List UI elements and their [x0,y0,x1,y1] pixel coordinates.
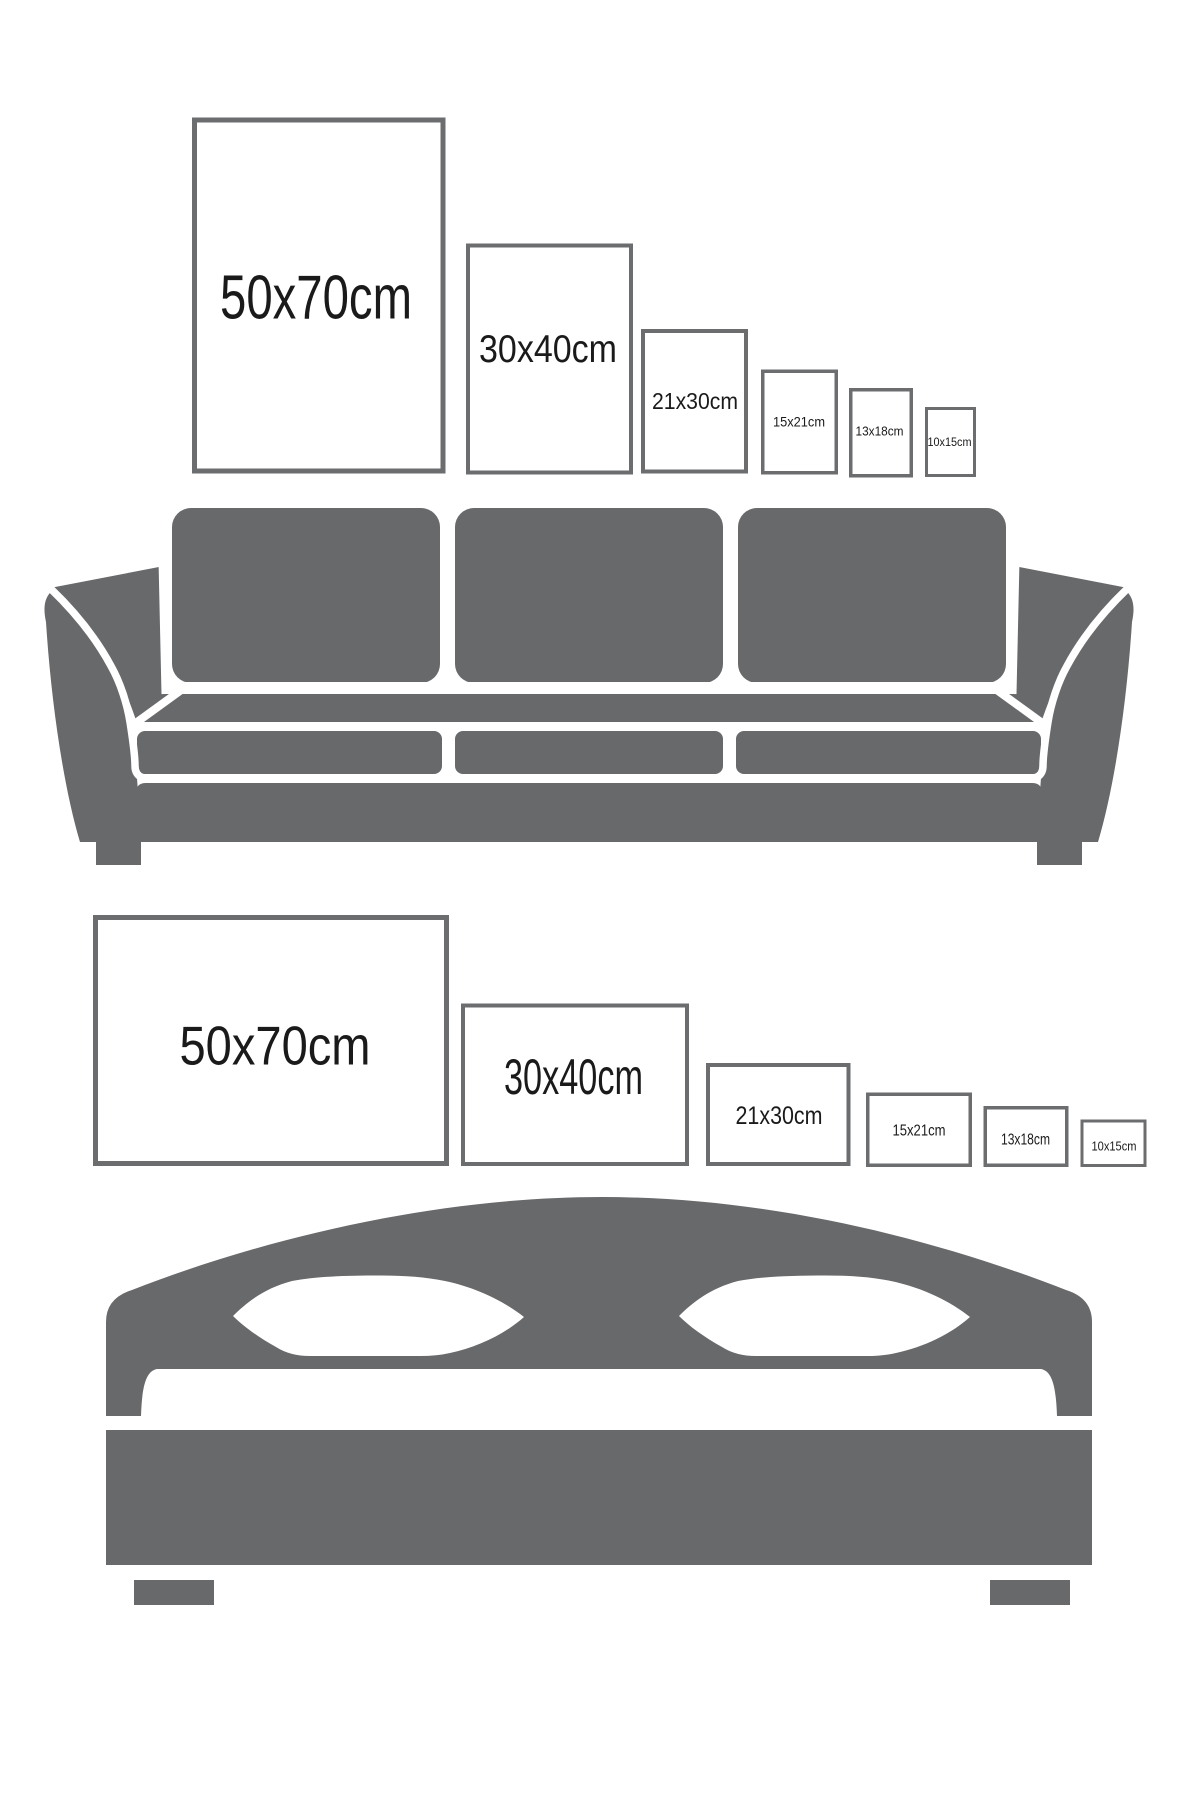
svg-text:15x21cm: 15x21cm [773,415,825,430]
svg-text:21x30cm: 21x30cm [652,388,738,414]
svg-text:10x15cm: 10x15cm [1092,1139,1137,1154]
svg-text:21x30cm: 21x30cm [736,1102,823,1130]
svg-text:15x21cm: 15x21cm [893,1123,946,1140]
svg-text:50x70cm: 50x70cm [180,1015,371,1077]
svg-text:10x15cm: 10x15cm [928,435,972,449]
svg-text:30x40cm: 30x40cm [504,1049,643,1105]
svg-text:13x18cm: 13x18cm [1001,1132,1050,1149]
svg-text:13x18cm: 13x18cm [856,424,904,439]
svg-text:30x40cm: 30x40cm [479,328,617,371]
svg-text:50x70cm: 50x70cm [220,264,412,333]
